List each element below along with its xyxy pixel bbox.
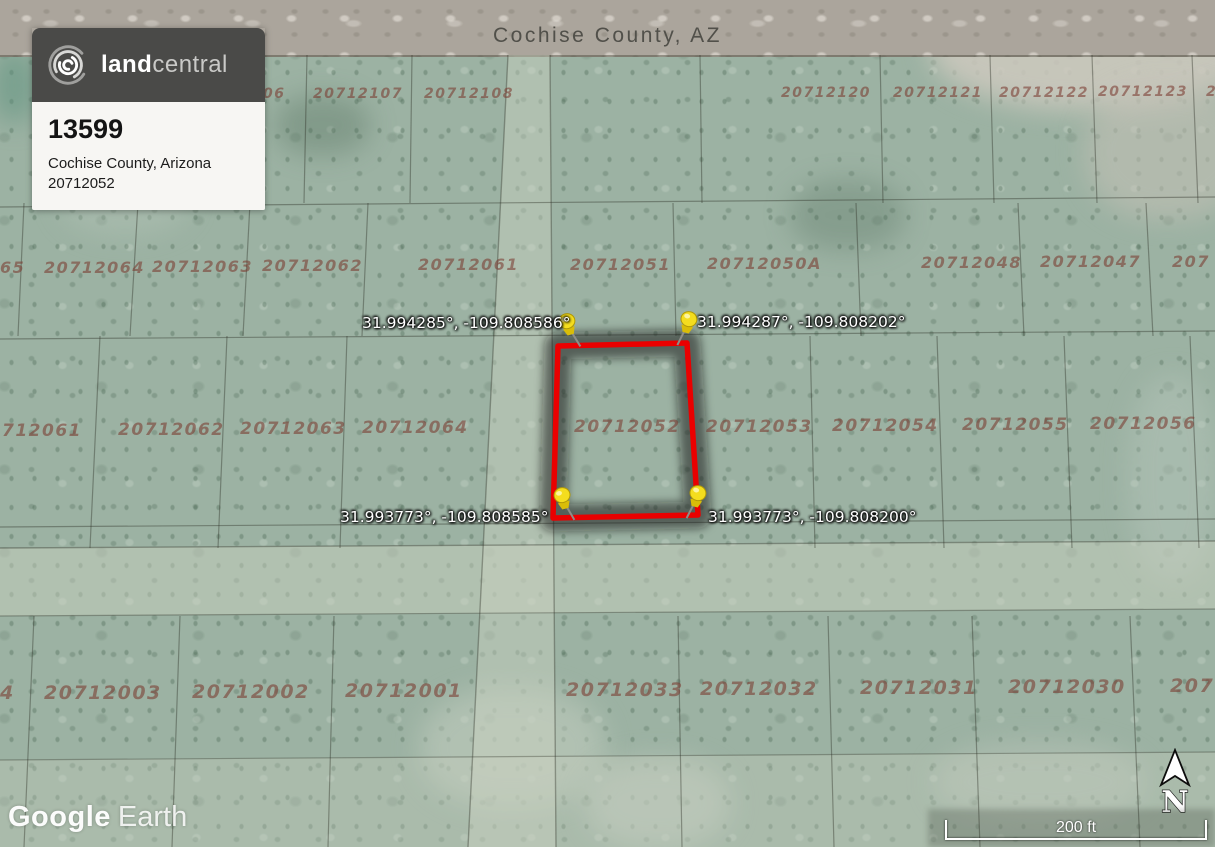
coordinate-label-bottom-right: 31.993773°, -109.808200°: [708, 508, 916, 526]
parcel-number-label: 20712050A: [707, 254, 822, 273]
parcel-number-label: 20712062: [262, 256, 363, 275]
listing-id: 13599: [48, 114, 249, 145]
parcel-number-label: 65: [0, 258, 25, 277]
parcel-number-label: 20712032: [700, 678, 818, 700]
parcel-number-label: 20712120: [781, 85, 871, 101]
scale-bar: 200 ft: [945, 820, 1207, 840]
parcel-number-label: 4: [0, 682, 15, 704]
parcel-number-label: 20712030: [1008, 676, 1126, 698]
parcel-number-label: 207: [1170, 675, 1214, 697]
parcel-number-label: 20712121: [893, 85, 983, 101]
parcel-number-label: 20712048: [921, 253, 1022, 272]
listing-card-body: 13599 Cochise County, Arizona 20712052: [32, 102, 265, 210]
parcel-number-label: 20712051: [570, 255, 671, 274]
parcel-number-label: 20712002: [192, 681, 310, 703]
parcel-number-label: 20712108: [424, 86, 514, 102]
parcel-number-label: 06: [263, 86, 285, 102]
coordinate-label-bottom-left: 31.993773°, -109.808585°: [340, 508, 548, 526]
parcel-number-label: 20712123: [1098, 84, 1188, 100]
parcel-number-label: 20712107: [313, 86, 403, 102]
scale-bar-label: 200 ft: [947, 819, 1205, 837]
parcel-number-label: 20712031: [860, 677, 978, 699]
parcel-number-label: 20712033: [566, 679, 684, 701]
parcel-number-label: 20712003: [44, 682, 162, 704]
parcel-number-label: 207: [1172, 252, 1210, 271]
google-earth-watermark: Google Earth: [8, 801, 187, 834]
listing-card: landcentral 13599 Cochise County, Arizon…: [32, 28, 265, 210]
listing-location: Cochise County, Arizona: [48, 154, 249, 174]
parcel-number-label: 712061: [2, 421, 82, 441]
parcel-number-label: 20712052: [574, 417, 681, 437]
parcel-number-label: 20712054: [832, 416, 939, 436]
landcentral-logo-icon: [45, 42, 91, 88]
parcel-number-label: 20712064: [362, 418, 469, 438]
coordinate-label-top-right: 31.994287°, -109.808202°: [697, 313, 905, 331]
parcel-number-label: 20712063: [152, 257, 253, 276]
coordinate-label-top-left: 31.994285°, -109.808586°: [362, 314, 570, 332]
parcel-number-label: 20712062: [118, 420, 225, 440]
google-earth-map-view[interactable]: Cochise County, AZ: [0, 0, 1215, 847]
listing-card-header: landcentral: [32, 28, 265, 102]
listing-parcel-number: 20712052: [48, 174, 249, 194]
landcentral-wordmark: landcentral: [101, 51, 228, 79]
parcel-number-label: 20712122: [999, 85, 1089, 101]
parcel-number-label: 20712064: [44, 258, 145, 277]
parcel-number-label: 20712056: [1090, 414, 1197, 434]
parcel-number-label: 20712055: [962, 415, 1069, 435]
parcel-number-label: 20712061: [418, 255, 519, 274]
parcel-number-label: 20712001: [345, 680, 463, 702]
parcel-number-label: 20712053: [706, 417, 813, 437]
parcel-number-label: 2: [1206, 84, 1215, 100]
parcel-number-label: 20712047: [1040, 252, 1141, 271]
parcel-number-label: 20712063: [240, 419, 347, 439]
